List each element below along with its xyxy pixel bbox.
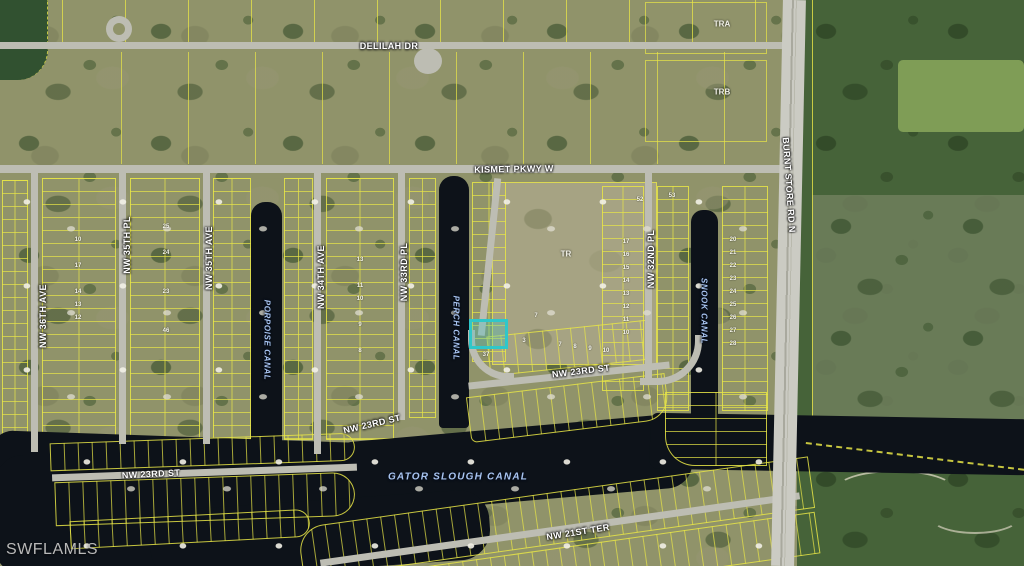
street-label-8: NW 32ND PL <box>646 230 656 289</box>
parcel-number-0: 53 <box>669 193 676 199</box>
parcel-number-20: 17 <box>75 263 82 269</box>
parcel-number-26: 23 <box>163 289 170 295</box>
canal-label-2: SNOOK CANAL <box>700 278 709 344</box>
parcel-number-5: 23 <box>730 276 737 282</box>
parcel-number-31: 9 <box>358 322 361 328</box>
parcel-number-28: 13 <box>357 257 364 263</box>
labels-layer: DELILAH DRKISMET PKWY WBURNT STORE RD NN… <box>0 0 1024 566</box>
street-label-3: NW 36TH AVE <box>38 284 48 348</box>
parcel-number-9: 27 <box>730 328 737 334</box>
parcel-number-34: 7 <box>534 313 537 319</box>
parcel-number-1: 52 <box>637 197 644 203</box>
parcel-number-4: 22 <box>730 263 737 269</box>
parcel-number-12: 16 <box>623 252 630 258</box>
canal-label-3: GATOR SLOUGH CANAL <box>388 472 528 483</box>
tract-label-0: TRA <box>714 20 730 29</box>
street-label-2: BURNT STORE RD N <box>781 137 798 233</box>
parcel-number-22: 13 <box>75 302 82 308</box>
street-label-1: KISMET PKWY W <box>474 163 554 174</box>
tract-label-1: TRB <box>714 88 730 97</box>
parcel-number-11: 17 <box>623 239 630 245</box>
parcel-number-17: 11 <box>623 317 629 323</box>
canal-label-1: PERCH CANAL <box>452 296 461 361</box>
parcel-number-16: 12 <box>623 304 630 310</box>
street-label-10: NW 23RD ST <box>342 413 401 436</box>
aerial-parcel-map: DELILAH DRKISMET PKWY WBURNT STORE RD NN… <box>0 0 1024 566</box>
parcel-number-10: 28 <box>730 341 737 347</box>
parcel-number-18: 10 <box>623 330 630 336</box>
street-label-0: DELILAH DR <box>360 41 419 51</box>
mls-watermark: SWFLAMLS <box>6 541 98 559</box>
parcel-number-15: 13 <box>623 291 630 297</box>
street-label-7: NW 33RD PL <box>399 243 409 302</box>
parcel-number-21: 14 <box>75 289 82 295</box>
parcel-number-30: 10 <box>357 296 364 302</box>
parcel-number-27: 46 <box>163 328 170 334</box>
parcel-number-32: 8 <box>358 348 361 354</box>
parcel-number-39: 10 <box>603 348 610 354</box>
parcel-number-29: 11 <box>357 283 363 289</box>
parcel-number-23: 12 <box>75 315 82 321</box>
tract-label-2: TR <box>561 250 572 259</box>
street-label-9: NW 23RD ST <box>122 467 181 480</box>
street-label-11: NW 23RD ST <box>551 362 610 379</box>
parcel-number-35: 3 <box>522 338 525 344</box>
parcel-number-13: 15 <box>623 265 630 271</box>
parcel-number-2: 20 <box>730 237 737 243</box>
parcel-number-33: 37 <box>483 352 490 358</box>
parcel-number-24: 25 <box>163 224 170 230</box>
parcel-number-19: 10 <box>75 237 82 243</box>
parcel-number-6: 24 <box>730 289 737 295</box>
canal-label-0: PORPOISE CANAL <box>263 300 272 380</box>
parcel-number-14: 14 <box>623 278 630 284</box>
parcel-number-37: 8 <box>573 344 576 350</box>
parcel-number-3: 21 <box>730 250 737 256</box>
parcel-number-8: 26 <box>730 315 737 321</box>
parcel-number-25: 24 <box>163 250 170 256</box>
street-label-12: NW 21ST TER <box>546 522 611 542</box>
street-label-6: NW 34TH AVE <box>316 245 326 309</box>
parcel-number-38: 9 <box>588 346 591 352</box>
parcel-number-7: 25 <box>730 302 737 308</box>
street-label-5: NW 35TH AVE <box>204 226 214 290</box>
street-label-4: NW 35TH PL <box>122 216 132 274</box>
parcel-number-36: 7 <box>558 342 561 348</box>
